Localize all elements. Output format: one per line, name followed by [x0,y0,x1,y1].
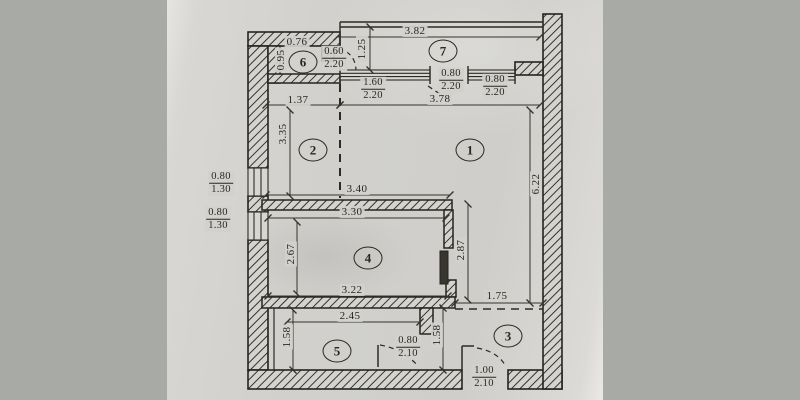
opening-width: 0.80 [209,171,233,184]
annotation-layer: 3.820.760.951.251.373.783.353.406.223.30… [0,0,800,400]
dimension-label: 3.40 [345,183,370,195]
opening-width: 1.60 [361,77,385,90]
dimension-label: 3.82 [403,25,428,37]
dimension-label: 3.35 [277,122,289,147]
opening-height: 2.20 [361,90,385,102]
dimension-label: 0.95 [275,48,287,73]
opening-size-label: 0.802.10 [395,335,421,360]
opening-height: 2.20 [439,81,463,93]
dimension-label: 6.22 [530,172,542,197]
opening-height: 2.10 [396,348,420,360]
room-number-badge: 6 [289,51,318,74]
opening-size-label: 0.602.20 [321,46,347,71]
scanned-floor-plan-photo: 3.820.760.951.251.373.783.353.406.223.30… [0,0,800,400]
opening-height: 1.30 [206,220,230,232]
opening-size-label: 1.602.20 [360,77,386,102]
room-number-badge: 5 [323,340,352,363]
opening-height: 2.20 [483,87,507,99]
opening-width: 0.80 [396,335,420,348]
opening-size-label: 0.802.20 [438,68,464,93]
dimension-label: 1.58 [281,325,293,350]
dimension-label: 2.45 [338,310,363,322]
opening-width: 1.00 [472,365,496,378]
dimension-label: 1.25 [356,37,368,62]
room-number-badge: 2 [299,139,328,162]
opening-size-label: 0.802.20 [482,74,508,99]
dimension-label: 3.30 [340,206,365,218]
dimension-label: 3.22 [340,284,365,296]
dimension-label: 2.67 [285,242,297,267]
room-number-badge: 4 [354,247,383,270]
opening-height: 1.30 [209,184,233,196]
opening-size-label: 1.002.10 [471,365,497,390]
opening-size-label: 0.801.30 [205,207,231,232]
opening-width: 0.60 [322,46,346,59]
opening-width: 0.80 [439,68,463,81]
opening-width: 0.80 [206,207,230,220]
dimension-label: 1.58 [431,323,443,348]
dimension-label: 0.76 [285,36,310,48]
dimension-label: 2.87 [455,238,467,263]
opening-height: 2.20 [322,59,346,71]
opening-size-label: 0.801.30 [208,171,234,196]
room-number-badge: 7 [429,40,458,63]
dimension-label: 1.75 [485,290,510,302]
opening-height: 2.10 [472,378,496,390]
room-number-badge: 1 [456,139,485,162]
dimension-label: 1.37 [286,94,311,106]
opening-width: 0.80 [483,74,507,87]
dimension-label: 3.78 [428,93,453,105]
room-number-badge: 3 [494,325,523,348]
